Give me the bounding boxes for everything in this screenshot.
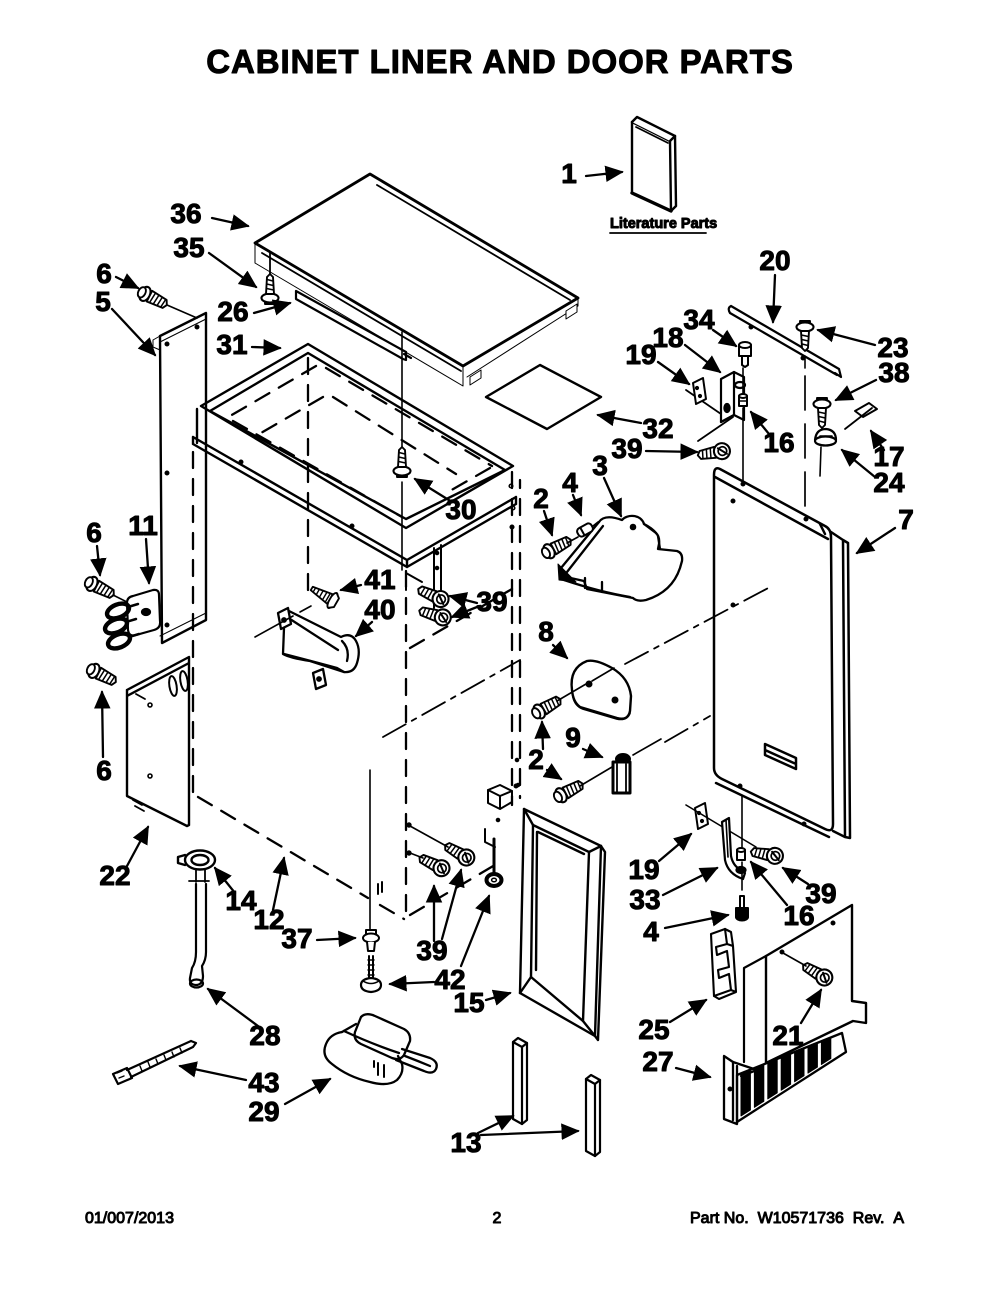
svg-text:27: 27 bbox=[642, 1046, 673, 1077]
svg-text:7: 7 bbox=[898, 504, 914, 535]
svg-text:2: 2 bbox=[533, 483, 549, 514]
svg-text:5: 5 bbox=[95, 286, 111, 317]
svg-text:39: 39 bbox=[476, 586, 507, 617]
svg-text:25: 25 bbox=[638, 1014, 669, 1045]
svg-text:19: 19 bbox=[628, 854, 659, 885]
svg-text:21: 21 bbox=[772, 1020, 803, 1051]
svg-text:33: 33 bbox=[629, 884, 660, 915]
svg-text:12: 12 bbox=[253, 904, 284, 935]
svg-text:26: 26 bbox=[217, 296, 248, 327]
svg-text:30: 30 bbox=[445, 494, 476, 525]
svg-text:34: 34 bbox=[683, 304, 715, 335]
svg-text:6: 6 bbox=[96, 755, 112, 786]
svg-text:2: 2 bbox=[528, 744, 544, 775]
svg-text:6: 6 bbox=[86, 517, 102, 548]
svg-text:38: 38 bbox=[878, 357, 909, 388]
svg-text:42: 42 bbox=[434, 964, 465, 995]
svg-text:Part No. W10571736 Rev. A: Part No. W10571736 Rev. A bbox=[690, 1210, 904, 1227]
svg-text:41: 41 bbox=[364, 564, 395, 595]
svg-text:39: 39 bbox=[805, 878, 836, 909]
svg-text:31: 31 bbox=[216, 329, 247, 360]
svg-text:18: 18 bbox=[652, 322, 683, 353]
svg-text:1: 1 bbox=[561, 158, 577, 189]
svg-text:43: 43 bbox=[248, 1067, 279, 1098]
svg-text:01/007/2013: 01/007/2013 bbox=[85, 1210, 174, 1227]
svg-text:36: 36 bbox=[170, 198, 201, 229]
svg-text:4: 4 bbox=[562, 467, 578, 498]
svg-text:CABINET LINER AND DOOR PARTS: CABINET LINER AND DOOR PARTS bbox=[206, 43, 794, 80]
svg-text:28: 28 bbox=[249, 1020, 280, 1051]
svg-text:8: 8 bbox=[538, 616, 554, 647]
svg-text:4: 4 bbox=[643, 916, 659, 947]
svg-text:22: 22 bbox=[99, 860, 130, 891]
svg-text:6: 6 bbox=[96, 258, 112, 289]
svg-text:29: 29 bbox=[248, 1096, 279, 1127]
svg-text:20: 20 bbox=[759, 245, 790, 276]
svg-text:Literature Parts: Literature Parts bbox=[610, 216, 717, 232]
svg-text:14: 14 bbox=[225, 885, 257, 916]
svg-text:2: 2 bbox=[493, 1210, 502, 1227]
svg-text:40: 40 bbox=[364, 594, 395, 625]
svg-text:19: 19 bbox=[625, 339, 656, 370]
svg-text:35: 35 bbox=[173, 232, 204, 263]
svg-text:24: 24 bbox=[873, 467, 905, 498]
svg-text:9: 9 bbox=[565, 722, 581, 753]
svg-text:11: 11 bbox=[128, 510, 158, 541]
svg-text:32: 32 bbox=[642, 413, 673, 444]
svg-text:39: 39 bbox=[611, 433, 642, 464]
svg-text:13: 13 bbox=[450, 1127, 481, 1158]
svg-text:3: 3 bbox=[592, 450, 608, 481]
svg-text:37: 37 bbox=[281, 923, 312, 954]
